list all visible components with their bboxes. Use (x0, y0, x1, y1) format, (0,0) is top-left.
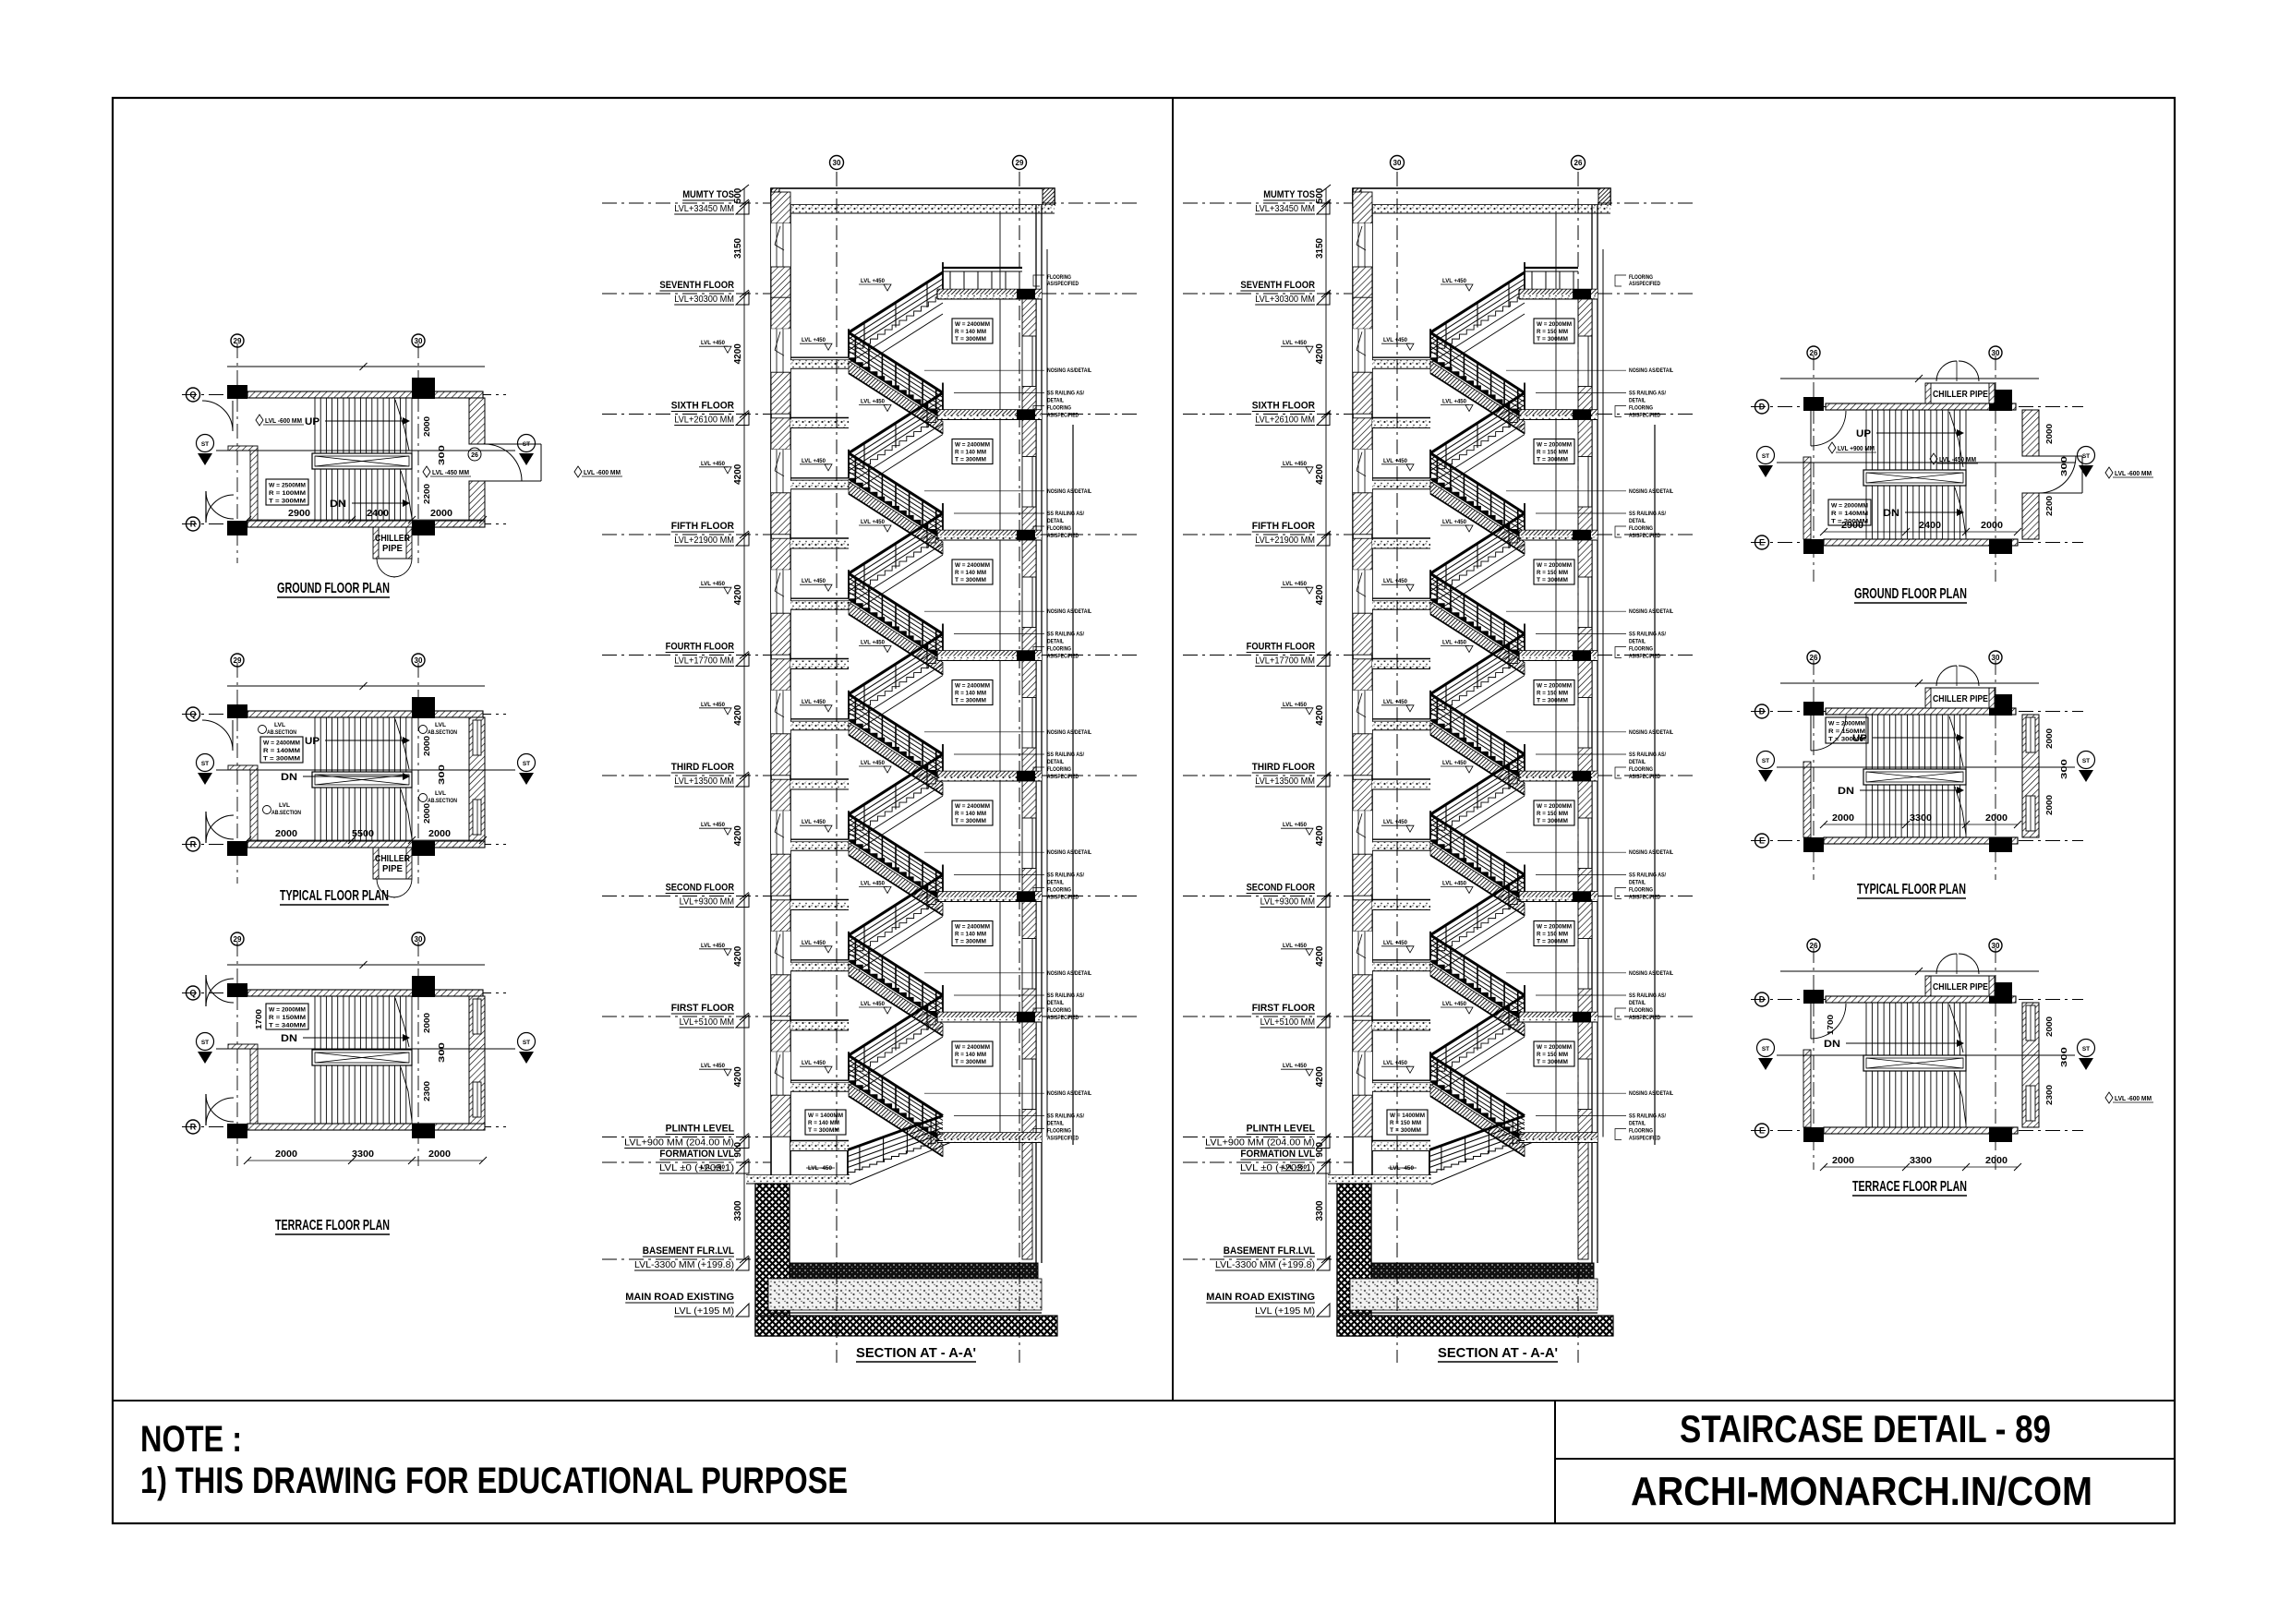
svg-text:2000: 2000 (1985, 813, 2008, 824)
svg-text:TERRACE FLOOR PLAN: TERRACE FLOOR PLAN (275, 1218, 390, 1233)
svg-text:26: 26 (1810, 942, 1818, 950)
svg-text:DETAIL: DETAIL (1629, 519, 1646, 524)
svg-text:LVL+17700 MM: LVL+17700 MM (674, 656, 734, 667)
svg-text:NOSING AS/DETAIL: NOSING AS/DETAIL (1629, 1091, 1673, 1097)
svg-text:T = 300MM: T = 300MM (955, 939, 986, 945)
svg-text:300: 300 (437, 445, 446, 465)
svg-text:R = 140 MM: R = 140 MM (955, 329, 986, 335)
svg-text:FIRST FLOOR: FIRST FLOOR (671, 1003, 734, 1014)
svg-text:FLOORING: FLOORING (1047, 275, 1071, 281)
svg-text:CHILLER: CHILLER (375, 534, 411, 544)
svg-text:Q: Q (189, 391, 196, 400)
svg-text:AS/SPECIFIED: AS/SPECIFIED (1047, 1137, 1079, 1142)
svg-text:4200: 4200 (733, 343, 743, 365)
svg-text:LVL +450: LVL +450 (1283, 823, 1308, 828)
svg-text:3300: 3300 (352, 1149, 374, 1160)
svg-text:LVL (+195 M): LVL (+195 M) (674, 1306, 734, 1317)
svg-text:30: 30 (1992, 349, 2000, 357)
svg-text:R = 140 MM: R = 140 MM (955, 450, 986, 456)
svg-text:LVL +450: LVL +450 (701, 462, 726, 467)
svg-text:ST: ST (1762, 453, 1769, 460)
svg-text:R = 140 MM: R = 140 MM (955, 570, 986, 576)
svg-text:LVL +450: LVL +450 (1442, 882, 1467, 887)
svg-text:E: E (1759, 1126, 1765, 1136)
svg-text:W = 2400MM: W = 2400MM (955, 562, 990, 569)
svg-text:R = 150 MM: R = 150 MM (1537, 691, 1568, 697)
svg-text:29: 29 (234, 935, 242, 944)
svg-text:4200: 4200 (733, 584, 743, 606)
svg-text:LVL (+195 M): LVL (+195 M) (1255, 1306, 1315, 1317)
svg-text:SECOND FLOOR: SECOND FLOOR (1247, 883, 1315, 894)
svg-text:R = 140 MM: R = 140 MM (955, 932, 986, 938)
svg-text:T = 300MM: T = 300MM (269, 499, 306, 505)
svg-text:LVL+17700 MM: LVL+17700 MM (1255, 656, 1315, 667)
svg-text:4200: 4200 (1315, 584, 1325, 606)
svg-text:LVL+13500 MM: LVL+13500 MM (674, 776, 734, 787)
svg-text:LVL+26100 MM: LVL+26100 MM (1255, 415, 1315, 426)
svg-text:SS RAILING AS/: SS RAILING AS/ (1629, 993, 1666, 999)
svg-text:R = 140 MM: R = 140 MM (955, 691, 986, 697)
svg-text:SS RAILING AS/: SS RAILING AS/ (1629, 752, 1666, 758)
svg-text:ST: ST (1762, 1046, 1769, 1053)
svg-text:29: 29 (1016, 159, 1024, 167)
svg-text:FIFTH FLOOR: FIFTH FLOOR (671, 521, 734, 532)
svg-text:LVL+5100 MM: LVL+5100 MM (1260, 1017, 1315, 1028)
svg-text:DETAIL: DETAIL (1629, 399, 1646, 404)
svg-text:T = 300MM: T = 300MM (263, 756, 300, 763)
svg-text:30: 30 (1393, 159, 1402, 167)
svg-text:AB.SECTION: AB.SECTION (428, 799, 457, 804)
svg-text:DETAIL: DETAIL (1047, 1122, 1064, 1127)
svg-text:LVL +450: LVL +450 (701, 341, 726, 346)
svg-text:T = 300MM: T = 300MM (955, 457, 986, 463)
svg-text:MAIN ROAD EXISTING: MAIN ROAD EXISTING (1206, 1292, 1315, 1303)
svg-text:3300: 3300 (1910, 1156, 1932, 1166)
svg-text:T = 300MM: T = 300MM (955, 818, 986, 824)
svg-text:W = 2000MM: W = 2000MM (1537, 803, 1572, 810)
svg-text:DN: DN (1838, 786, 1854, 797)
svg-text:3300: 3300 (1315, 1200, 1325, 1221)
svg-text:2000: 2000 (422, 1013, 431, 1033)
svg-text:FLOORING: FLOORING (1047, 888, 1071, 894)
svg-text:FLOORING: FLOORING (1047, 1129, 1071, 1135)
svg-text:DN: DN (1824, 1039, 1840, 1050)
svg-text:FLOORING: FLOORING (1047, 526, 1071, 532)
svg-text:LVL -450: LVL -450 (808, 1166, 833, 1172)
svg-text:DETAIL: DETAIL (1047, 1001, 1064, 1006)
svg-text:T = 300MM: T = 300MM (1537, 577, 1568, 583)
svg-text:4200: 4200 (733, 704, 743, 726)
svg-text:DETAIL: DETAIL (1047, 640, 1064, 645)
svg-text:LVL: LVL (435, 791, 446, 797)
svg-text:W = 2000MM: W = 2000MM (1537, 321, 1572, 328)
svg-text:LVL +450: LVL +450 (802, 820, 826, 825)
svg-text:R = 150 MM: R = 150 MM (1390, 1120, 1421, 1126)
svg-text:LVL+9300 MM: LVL+9300 MM (1260, 897, 1315, 908)
svg-text:STAIRCASE DETAIL - 89: STAIRCASE DETAIL - 89 (1680, 1407, 2051, 1450)
svg-text:LVL +450: LVL +450 (861, 1002, 886, 1007)
svg-text:FOURTH FLOOR: FOURTH FLOOR (1247, 642, 1315, 653)
svg-text:LVL +450: LVL +450 (861, 882, 886, 887)
svg-text:T = 300MM: T = 300MM (808, 1127, 839, 1134)
svg-text:R: R (190, 520, 197, 529)
svg-text:NOTE :: NOTE : (140, 1419, 242, 1460)
svg-text:FLOORING: FLOORING (1047, 767, 1071, 773)
svg-text:LVL +450: LVL +450 (1442, 761, 1467, 766)
svg-text:LVL +450: LVL +450 (1383, 338, 1408, 343)
svg-text:DN: DN (281, 772, 297, 783)
svg-text:2000: 2000 (422, 416, 431, 437)
svg-text:LVL +450: LVL +450 (861, 520, 886, 525)
svg-text:300: 300 (2059, 1047, 2068, 1067)
svg-text:LVL +450: LVL +450 (1383, 459, 1408, 464)
svg-text:29: 29 (234, 337, 242, 345)
svg-text:2000: 2000 (428, 1149, 451, 1160)
svg-text:R = 140MM: R = 140MM (263, 748, 300, 754)
svg-text:DETAIL: DETAIL (1047, 519, 1064, 524)
svg-text:LVL ±0 (+203.1): LVL ±0 (+203.1) (1240, 1163, 1315, 1173)
svg-text:R = 140 MM: R = 140 MM (955, 811, 986, 817)
svg-text:1700: 1700 (1826, 1015, 1835, 1035)
svg-text:LVL +450: LVL +450 (1283, 341, 1308, 346)
svg-text:4200: 4200 (1315, 343, 1325, 365)
svg-text:SS RAILING AS/: SS RAILING AS/ (1629, 1114, 1666, 1120)
svg-text:W = 2000MM: W = 2000MM (1828, 721, 1865, 728)
svg-text:R = 150 MM: R = 150 MM (1537, 570, 1568, 576)
svg-text:AS/SPECIFIED: AS/SPECIFIED (1047, 282, 1079, 287)
svg-text:R = 140MM: R = 140MM (1831, 511, 1868, 517)
svg-text:3300: 3300 (733, 1200, 743, 1221)
svg-text:2200: 2200 (2044, 496, 2054, 516)
svg-text:UP: UP (1856, 428, 1871, 439)
svg-text:300: 300 (2059, 759, 2068, 779)
svg-text:SEVENTH FLOOR: SEVENTH FLOOR (659, 280, 734, 291)
svg-text:26: 26 (1810, 654, 1818, 662)
svg-text:AB.SECTION: AB.SECTION (271, 811, 301, 816)
svg-text:D: D (1759, 403, 1766, 412)
svg-text:W = 2500MM: W = 2500MM (269, 483, 306, 489)
svg-text:GROUND FLOOR PLAN: GROUND FLOOR PLAN (277, 581, 390, 596)
svg-text:UP: UP (305, 416, 320, 427)
svg-text:BASEMENT FLR.LVL: BASEMENT FLR.LVL (1224, 1245, 1315, 1257)
svg-text:FLOORING: FLOORING (1047, 1008, 1071, 1014)
svg-text:LVL +450: LVL +450 (802, 338, 826, 343)
svg-text:AS/SPECIFIED: AS/SPECIFIED (1629, 282, 1661, 287)
svg-text:SS RAILING AS/: SS RAILING AS/ (1047, 1114, 1084, 1120)
svg-text:NOSING AS/DETAIL: NOSING AS/DETAIL (1047, 609, 1091, 615)
svg-text:LVL+30300 MM: LVL+30300 MM (1255, 295, 1315, 305)
svg-text:DETAIL: DETAIL (1629, 1001, 1646, 1006)
svg-text:FLOORING: FLOORING (1629, 647, 1653, 653)
svg-text:LVL +450: LVL +450 (1383, 820, 1408, 825)
svg-text:T = 300MM: T = 300MM (1537, 1059, 1568, 1065)
svg-text:R = 150 MM: R = 150 MM (1537, 329, 1568, 335)
svg-text:LVL-3300 MM (+199.8): LVL-3300 MM (+199.8) (634, 1260, 734, 1270)
svg-text:T = 300MM: T = 300MM (1537, 336, 1568, 343)
svg-text:SECTION AT - A-A': SECTION AT - A-A' (856, 1345, 976, 1361)
svg-text:R = 140 MM: R = 140 MM (955, 1052, 986, 1058)
svg-text:R = 150 MM: R = 150 MM (1537, 932, 1568, 938)
svg-text:26: 26 (1574, 159, 1583, 167)
svg-text:300: 300 (2059, 456, 2068, 476)
svg-text:AB.SECTION: AB.SECTION (267, 730, 296, 736)
svg-text:NOSING AS/DETAIL: NOSING AS/DETAIL (1629, 609, 1673, 615)
svg-text:NOSING AS/DETAIL: NOSING AS/DETAIL (1629, 489, 1673, 495)
svg-text:SECTION AT - A-A': SECTION AT - A-A' (1438, 1345, 1558, 1361)
svg-text:E: E (1759, 538, 1765, 547)
svg-text:DN: DN (281, 1033, 297, 1044)
svg-text:TERRACE FLOOR PLAN: TERRACE FLOOR PLAN (1852, 1179, 1967, 1195)
svg-text:ST: ST (523, 1040, 530, 1046)
svg-text:LVL+33450 MM: LVL+33450 MM (674, 204, 734, 214)
svg-text:TYPICAL FLOOR PLAN: TYPICAL FLOOR PLAN (1857, 882, 1966, 897)
svg-text:FLOORING: FLOORING (1629, 406, 1653, 412)
svg-text:SS RAILING AS/: SS RAILING AS/ (1047, 511, 1084, 517)
svg-text:LVL ±0 (+203.1): LVL ±0 (+203.1) (659, 1163, 734, 1173)
svg-text:LVL +450: LVL +450 (701, 703, 726, 708)
svg-text:LVL: LVL (279, 803, 290, 809)
svg-text:900: 900 (733, 1141, 743, 1157)
svg-text:DN: DN (330, 499, 346, 510)
svg-text:PIPE: PIPE (382, 544, 403, 554)
svg-text:LVL +450: LVL +450 (1383, 700, 1408, 705)
svg-text:FLOORING: FLOORING (1629, 1008, 1653, 1014)
svg-text:LVL+21900 MM: LVL+21900 MM (674, 535, 734, 546)
svg-text:NOSING AS/DETAIL: NOSING AS/DETAIL (1047, 730, 1091, 736)
svg-text:T = 340MM: T = 340MM (269, 1023, 306, 1029)
svg-text:TYPICAL FLOOR PLAN: TYPICAL FLOOR PLAN (280, 888, 389, 904)
svg-text:Q: Q (189, 989, 196, 998)
svg-text:1) THIS DRAWING FOR EDUCATIONA: 1) THIS DRAWING FOR EDUCATIONAL PURPOSE (140, 1461, 848, 1501)
svg-text:W = 2400MM: W = 2400MM (955, 683, 990, 690)
svg-text:3150: 3150 (1315, 237, 1325, 259)
svg-text:D: D (1759, 707, 1766, 716)
svg-text:DETAIL: DETAIL (1047, 399, 1064, 404)
svg-text:4200: 4200 (733, 945, 743, 967)
svg-text:LVL+33450 MM: LVL+33450 MM (1255, 204, 1315, 214)
svg-text:T = 300MM: T = 300MM (955, 1059, 986, 1065)
svg-text:R = 150MM: R = 150MM (1828, 728, 1865, 735)
svg-text:LVL +450: LVL +450 (1383, 941, 1408, 946)
svg-text:SS RAILING AS/: SS RAILING AS/ (1047, 632, 1084, 638)
svg-text:W = 2400MM: W = 2400MM (955, 924, 990, 931)
svg-text:FLOORING: FLOORING (1629, 526, 1653, 532)
svg-text:4200: 4200 (1315, 463, 1325, 485)
svg-text:300: 300 (437, 1042, 446, 1063)
svg-text:W = 1400MM: W = 1400MM (808, 1113, 843, 1119)
svg-text:NOSING AS/DETAIL: NOSING AS/DETAIL (1629, 850, 1673, 856)
svg-text:SS RAILING AS/: SS RAILING AS/ (1629, 391, 1666, 397)
svg-text:LVL: LVL (274, 723, 285, 728)
svg-text:LVL +450: LVL +450 (1283, 1064, 1308, 1069)
svg-text:DETAIL: DETAIL (1629, 881, 1646, 886)
svg-text:LVL +450: LVL +450 (1442, 400, 1467, 405)
svg-text:2400: 2400 (1919, 521, 1941, 531)
svg-text:NOSING AS/DETAIL: NOSING AS/DETAIL (1629, 730, 1673, 736)
svg-text:LVL +450: LVL +450 (1283, 462, 1308, 467)
svg-text:1700: 1700 (254, 1009, 263, 1029)
svg-text:2000: 2000 (1832, 1156, 1854, 1166)
svg-text:MUMTY TOS: MUMTY TOS (1263, 189, 1315, 200)
svg-text:30: 30 (1992, 942, 2000, 950)
svg-text:LVL +450: LVL +450 (701, 823, 726, 828)
svg-text:LVL+21900 MM: LVL+21900 MM (1255, 535, 1315, 546)
svg-text:2000: 2000 (430, 509, 452, 519)
svg-text:2000: 2000 (1832, 813, 1854, 824)
svg-text:LVL+30300 MM: LVL+30300 MM (674, 295, 734, 305)
svg-text:LVL +450: LVL +450 (1442, 1002, 1467, 1007)
svg-text:2900: 2900 (288, 509, 310, 519)
svg-text:W = 2400MM: W = 2400MM (955, 1044, 990, 1051)
svg-text:CHILLER PIPE: CHILLER PIPE (1933, 390, 1988, 400)
svg-text:W = 2000MM: W = 2000MM (1831, 503, 1868, 510)
svg-text:NOSING AS/DETAIL: NOSING AS/DETAIL (1047, 489, 1091, 495)
svg-text:SS RAILING AS/: SS RAILING AS/ (1629, 632, 1666, 638)
svg-text:DN: DN (1883, 508, 1899, 519)
svg-text:LVL +450: LVL +450 (802, 459, 826, 464)
svg-text:LVL +450: LVL +450 (802, 941, 826, 946)
svg-text:R = 140 MM: R = 140 MM (808, 1120, 839, 1126)
svg-text:THIRD FLOOR: THIRD FLOOR (671, 762, 734, 773)
svg-text:SIXTH FLOOR: SIXTH FLOOR (1252, 401, 1315, 412)
svg-text:DETAIL: DETAIL (1047, 760, 1064, 765)
svg-text:THIRD FLOOR: THIRD FLOOR (1252, 762, 1315, 773)
svg-text:T = 300MM: T = 300MM (1828, 737, 1865, 743)
svg-text:LVL+900 MM (204.00 M): LVL+900 MM (204.00 M) (1205, 1138, 1315, 1149)
svg-text:5500: 5500 (352, 829, 374, 839)
svg-text:LVL -450 MM: LVL -450 MM (1939, 455, 1976, 463)
svg-text:2300: 2300 (422, 1081, 431, 1101)
svg-text:2000: 2000 (428, 829, 451, 839)
svg-text:LVL: LVL (435, 723, 446, 728)
svg-text:29: 29 (234, 656, 242, 665)
svg-text:LVL +450: LVL +450 (802, 700, 826, 705)
svg-text:R: R (190, 1123, 197, 1132)
svg-text:T = 300MM: T = 300MM (1537, 818, 1568, 824)
svg-text:DETAIL: DETAIL (1629, 640, 1646, 645)
svg-text:PIPE: PIPE (382, 864, 403, 874)
svg-text:LVL +450: LVL +450 (1283, 944, 1308, 949)
svg-text:300: 300 (437, 764, 446, 785)
svg-text:2000: 2000 (422, 736, 431, 756)
svg-text:SS RAILING AS/: SS RAILING AS/ (1047, 993, 1084, 999)
svg-text:W = 2400MM: W = 2400MM (263, 740, 300, 747)
svg-text:4200: 4200 (1315, 1066, 1325, 1088)
svg-text:900: 900 (1315, 1141, 1325, 1157)
svg-text:DETAIL: DETAIL (1629, 760, 1646, 765)
svg-text:W = 1400MM: W = 1400MM (1390, 1113, 1425, 1119)
svg-text:4200: 4200 (1315, 825, 1325, 847)
svg-text:LVL-3300 MM (+199.8): LVL-3300 MM (+199.8) (1215, 1260, 1315, 1270)
svg-text:26: 26 (471, 452, 478, 459)
svg-text:T = 300MM: T = 300MM (1537, 939, 1568, 945)
svg-text:LVL -600 MM: LVL -600 MM (2115, 469, 2152, 477)
svg-text:R = 100MM: R = 100MM (269, 490, 306, 497)
svg-text:2000: 2000 (1985, 1156, 2008, 1166)
svg-text:30: 30 (415, 337, 423, 345)
svg-text:SECOND FLOOR: SECOND FLOOR (666, 883, 734, 894)
svg-text:LVL +450: LVL +450 (1442, 641, 1467, 646)
svg-text:FLOORING: FLOORING (1629, 1129, 1653, 1135)
svg-text:R: R (190, 840, 197, 849)
svg-text:W = 2000MM: W = 2000MM (1537, 924, 1572, 931)
svg-text:FORMATION LVL: FORMATION LVL (1240, 1149, 1315, 1160)
svg-text:LVL +450: LVL +450 (1442, 279, 1467, 284)
svg-text:LVL +450: LVL +450 (701, 582, 726, 587)
svg-text:LVL +450: LVL +450 (1383, 1061, 1408, 1066)
svg-text:UP: UP (305, 736, 320, 747)
svg-text:SS RAILING AS/: SS RAILING AS/ (1047, 873, 1084, 879)
svg-text:T = 300MM: T = 300MM (1537, 698, 1568, 704)
svg-text:4200: 4200 (733, 463, 743, 485)
svg-text:NOSING AS/DETAIL: NOSING AS/DETAIL (1047, 850, 1091, 856)
svg-text:FLOORING: FLOORING (1047, 406, 1071, 412)
svg-text:30: 30 (1992, 654, 2000, 662)
svg-text:GROUND FLOOR PLAN: GROUND FLOOR PLAN (1854, 586, 1967, 602)
svg-text:E: E (1759, 836, 1765, 846)
svg-text:FIRST FLOOR: FIRST FLOOR (1252, 1003, 1315, 1014)
svg-text:LVL +900 MM: LVL +900 MM (1838, 444, 1875, 452)
svg-text:LVL -450 MM: LVL -450 MM (432, 468, 469, 476)
svg-text:ST: ST (201, 761, 209, 767)
svg-text:FLOORING: FLOORING (1629, 275, 1653, 281)
svg-text:30: 30 (415, 935, 423, 944)
svg-text:LVL +450: LVL +450 (1283, 582, 1308, 587)
svg-text:500: 500 (1315, 187, 1325, 203)
svg-text:NOSING AS/DETAIL: NOSING AS/DETAIL (1047, 971, 1091, 977)
svg-text:LVL +450: LVL +450 (1383, 579, 1408, 584)
svg-text:R = 150MM: R = 150MM (269, 1015, 306, 1021)
svg-text:NOSING AS/DETAIL: NOSING AS/DETAIL (1047, 1091, 1091, 1097)
svg-text:FORMATION LVL: FORMATION LVL (659, 1149, 734, 1160)
svg-text:ST: ST (2082, 758, 2090, 764)
svg-text:NOSING AS/DETAIL: NOSING AS/DETAIL (1629, 971, 1673, 977)
svg-text:ST: ST (523, 761, 530, 767)
svg-text:LVL +450: LVL +450 (701, 1064, 726, 1069)
svg-text:NOSING AS/DETAIL: NOSING AS/DETAIL (1629, 368, 1673, 374)
svg-text:2000: 2000 (1981, 521, 2003, 531)
svg-text:2000: 2000 (275, 829, 297, 839)
svg-text:W = 2400MM: W = 2400MM (955, 803, 990, 810)
svg-text:26: 26 (1810, 349, 1818, 357)
svg-text:AB.SECTION: AB.SECTION (428, 730, 457, 736)
svg-text:LVL -600 MM: LVL -600 MM (2115, 1094, 2152, 1102)
svg-text:W = 2000MM: W = 2000MM (1537, 442, 1572, 449)
svg-text:LVL -600 MM: LVL -600 MM (584, 468, 621, 476)
svg-text:2000: 2000 (2044, 795, 2054, 815)
svg-text:2000: 2000 (275, 1149, 297, 1160)
svg-text:W = 2000MM: W = 2000MM (1537, 1044, 1572, 1051)
svg-text:500: 500 (733, 187, 743, 203)
svg-text:2000: 2000 (2044, 728, 2054, 749)
svg-text:SS RAILING AS/: SS RAILING AS/ (1047, 391, 1084, 397)
svg-text:3150: 3150 (733, 237, 743, 259)
svg-text:FLOORING: FLOORING (1047, 647, 1071, 653)
svg-text:2400: 2400 (367, 509, 389, 519)
svg-text:T = 300MM: T = 300MM (1537, 457, 1568, 463)
svg-text:W = 2000MM: W = 2000MM (1537, 562, 1572, 569)
svg-text:W = 2400MM: W = 2400MM (955, 321, 990, 328)
svg-text:2900: 2900 (1841, 521, 1863, 531)
svg-text:4200: 4200 (1315, 945, 1325, 967)
svg-text:LVL+9300 MM: LVL+9300 MM (680, 897, 734, 908)
svg-text:SS RAILING AS/: SS RAILING AS/ (1629, 511, 1666, 517)
svg-text:3300: 3300 (1910, 813, 1932, 824)
svg-text:T = 300MM: T = 300MM (955, 577, 986, 583)
svg-text:LVL +450: LVL +450 (1283, 703, 1308, 708)
svg-text:BASEMENT FLR.LVL: BASEMENT FLR.LVL (643, 1245, 734, 1257)
svg-text:LVL+26100 MM: LVL+26100 MM (674, 415, 734, 426)
